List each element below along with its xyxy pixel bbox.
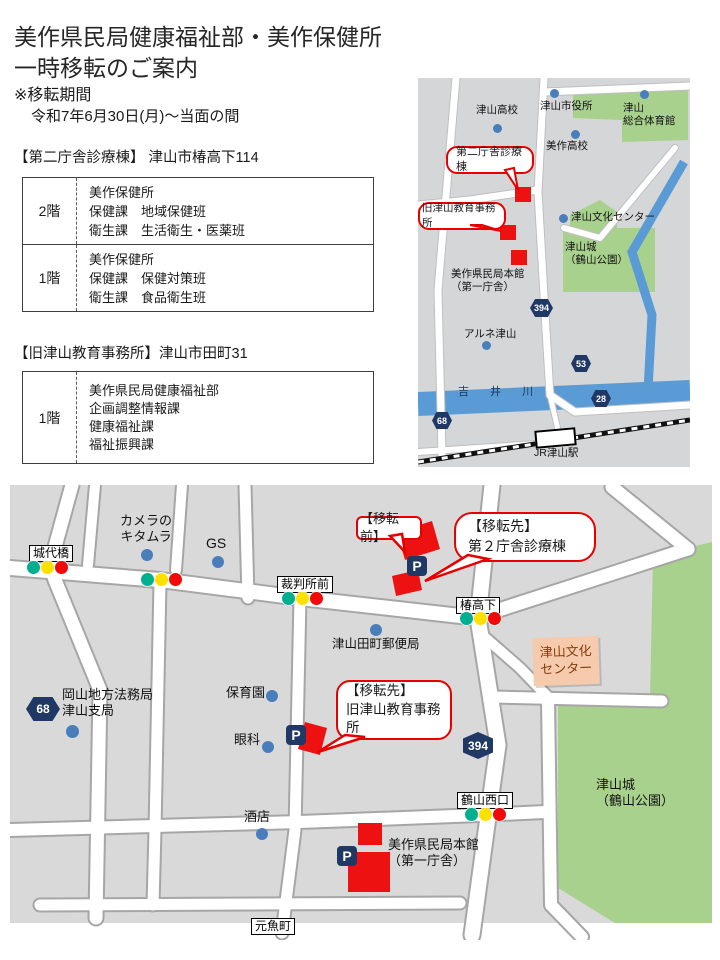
period-label: ※移転期間 [14,86,91,106]
departments-cell: 美作保健所 保健課 地域保健班 衛生課 生活衛生・医薬班 [77,178,257,244]
traffic-light-tsubakikouge [460,612,501,625]
traffic-light-kakuzan [465,808,506,821]
parking-icon: P [286,725,306,745]
table-row: 2階 美作保健所 保健課 地域保健班 衛生課 生活衛生・医薬班 [23,178,373,244]
poi-label-castle: 津山城 （鶴山公園） [596,777,674,810]
table-row: 1階 美作県民局健康福祉部 企画調整情報課 健康福祉課 福祉振興課 [23,372,373,463]
traffic-light-mid [141,573,182,586]
poi-label-saketen: 酒店 [244,809,270,825]
detail-map: 津山文化 センター カメラの キタムラ GS 津山田町郵便局 岡山地方法務局 津… [10,485,712,940]
page-title-line1: 美作県民局健康福祉部・美作保健所 [14,24,382,50]
honkan-building-a [358,823,382,845]
sign-kakuzan-nishiguchi: 鶴山西口 [457,792,513,809]
departments-cell: 美作保健所 保健課 保健対策班 衛生課 食品衛生班 [77,245,218,311]
clinic-building-heading: 【第二庁舎診療棟】 津山市椿高下114 [14,150,259,168]
poi-dot-saketen [256,828,268,840]
culture-center-block: 津山文化 センター [532,636,600,686]
river-label: 吉 井 川 [458,386,542,400]
relocation-notice-page: 美作県民局健康福祉部・美作保健所一時移転のご案内 ※移転期間 令和7年6月30日… [0,0,720,960]
poi-label-kitamura: カメラの キタムラ [110,513,182,546]
callout-tail [415,545,500,590]
callout-tail [380,530,415,560]
clinic-floor-table: 2階 美作保健所 保健課 地域保健班 衛生課 生活衛生・医薬班 1階 美作保健所… [22,177,374,312]
poi-dot-hoikuen [266,690,278,702]
poi-dot-culture-center [559,214,568,223]
traffic-light-saibansho [282,592,323,605]
callout-tail [498,166,528,196]
poi-dot-post-office [370,624,382,636]
page-title: 美作県民局健康福祉部・美作保健所一時移転のご案内 [14,22,382,84]
poi-dot-ganka [262,741,274,753]
overview-map: 第二庁舎診療棟 旧津山教育事務所 津山高校 津山市役所 津山 総合体育館 美作高… [418,78,690,467]
old-office-floor-table: 1階 美作県民局健康福祉部 企画調整情報課 健康福祉課 福祉振興課 [22,371,374,464]
poi-dot-city-hall [550,89,559,98]
poi-dot-houmukyoku [66,725,79,738]
sign-joudaibashi: 城代橋 [29,545,73,562]
honkan-marker [511,250,527,265]
callout-tail [463,220,508,245]
parking-icon: P [337,846,357,866]
poi-label-city-hall: 津山市役所 [540,100,593,113]
poi-dot-tsuyama-highschool [493,124,502,133]
table-row: 1階 美作保健所 保健課 保健対策班 衛生課 食品衛生班 [23,244,373,311]
poi-label-houmukyoku: 岡山地方法務局 津山支局 [62,687,153,720]
poi-dot-gym [640,90,649,99]
poi-label-hoikuen: 保育園 [226,685,265,701]
poi-label-castle: 津山城 （鶴山公園） [565,241,628,267]
page-title-line2: 一時移転のご案内 [14,55,198,81]
old-office-heading: 【旧津山教育事務所】津山市田町31 [14,346,248,364]
poi-label-honkan: 美作県民局本館 （第一庁舎） [451,268,525,294]
departments-cell: 美作県民局健康福祉部 企画調整情報課 健康福祉課 福祉振興課 [77,372,231,463]
poi-dot-mimasaka-highschool [571,130,580,139]
period-value: 令和7年6月30日(月)～当面の間 [31,108,239,126]
poi-label-tsuyama-highschool: 津山高校 [476,104,518,117]
poi-label-culture-center: 津山文化センター [571,211,655,224]
sign-saibansho-mae: 裁判所前 [277,576,333,593]
poi-label-ganka: 眼科 [234,732,260,748]
floor-cell: 2階 [23,178,77,244]
poi-dot-kitamura [141,549,153,561]
station-label: JR津山駅 [534,447,578,460]
poi-label-arune: アルネ津山 [464,328,516,341]
poi-dot-gs [212,556,224,568]
traffic-light-joudaibashi [27,561,68,574]
poi-label-gs: GS [206,535,226,553]
poi-label-honkan: 美作県民局本館 （第一庁舎） [388,837,479,870]
station-marker [534,427,576,449]
poi-dot-arune [482,341,491,350]
poi-label-gym: 津山 総合体育館 [623,102,676,128]
sign-motouo-machi: 元魚町 [251,918,295,935]
poi-label-post-office: 津山田町郵便局 [332,637,420,653]
callout-tail [315,725,375,760]
floor-cell: 1階 [23,245,77,311]
floor-cell: 1階 [23,372,77,463]
poi-label-mimasaka-highschool: 美作高校 [546,140,588,153]
